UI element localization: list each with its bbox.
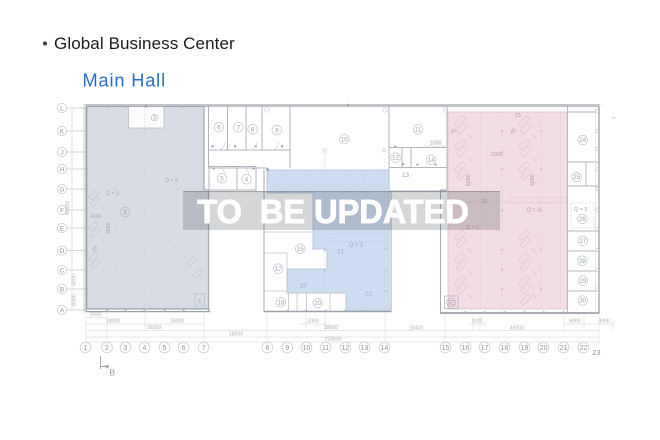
svg-text:1000: 1000 <box>471 319 483 325</box>
svg-text:6000: 6000 <box>569 319 581 325</box>
svg-text:45000: 45000 <box>510 326 525 332</box>
svg-text:16: 16 <box>462 345 470 352</box>
svg-text:13: 13 <box>361 345 369 352</box>
svg-text:18000: 18000 <box>106 319 121 325</box>
svg-text:15: 15 <box>297 246 304 253</box>
svg-text:TO BE UPDATED: TO BE UPDATED <box>197 194 469 231</box>
svg-text:10: 10 <box>341 136 348 143</box>
svg-text:18000: 18000 <box>229 332 244 338</box>
svg-text:G: G <box>59 186 64 193</box>
svg-text:18000: 18000 <box>170 319 185 325</box>
svg-text:Q = 3: Q = 3 <box>165 178 178 184</box>
svg-text:21: 21 <box>560 345 568 352</box>
svg-text:32: 32 <box>448 301 455 307</box>
svg-text:Q = 3: Q = 3 <box>349 243 363 249</box>
svg-text:6000: 6000 <box>90 312 102 318</box>
svg-text:6000: 6000 <box>72 294 78 306</box>
svg-text:17: 17 <box>481 345 489 352</box>
svg-text:Global Business Center: Global Business Center <box>54 34 235 53</box>
svg-text:26: 26 <box>579 216 586 223</box>
svg-text:10: 10 <box>303 345 311 352</box>
svg-text:7: 7 <box>237 124 241 131</box>
svg-text:20: 20 <box>540 345 548 352</box>
svg-text:1000: 1000 <box>430 141 442 147</box>
svg-text:20: 20 <box>314 300 321 307</box>
svg-text:8: 8 <box>251 126 255 133</box>
svg-text:11: 11 <box>322 345 329 352</box>
svg-text:9: 9 <box>285 345 289 352</box>
svg-text:2000: 2000 <box>307 319 319 325</box>
svg-text:B: B <box>60 286 65 293</box>
svg-text:40000: 40000 <box>65 201 71 216</box>
svg-text:23: 23 <box>515 113 521 119</box>
svg-text:19: 19 <box>299 283 307 290</box>
svg-text:6: 6 <box>217 124 221 131</box>
svg-text:6000: 6000 <box>466 174 472 186</box>
svg-text:14: 14 <box>381 345 389 352</box>
svg-text:1: 1 <box>84 345 88 352</box>
svg-text:25: 25 <box>573 174 580 181</box>
svg-text:12: 12 <box>392 155 399 162</box>
svg-text:22: 22 <box>580 345 588 352</box>
svg-text:6000: 6000 <box>530 174 536 186</box>
svg-text:15: 15 <box>442 345 450 352</box>
svg-text:F: F <box>60 207 64 214</box>
svg-text:Q = 3: Q = 3 <box>106 191 119 197</box>
svg-text:K: K <box>60 128 65 135</box>
svg-text:153600: 153600 <box>324 337 341 343</box>
svg-text:Q = 3: Q = 3 <box>574 207 587 213</box>
svg-text:4: 4 <box>143 345 147 352</box>
svg-text:13: 13 <box>402 172 409 179</box>
svg-text:7: 7 <box>202 345 206 352</box>
svg-text:22: 22 <box>365 291 373 298</box>
svg-text:L: L <box>60 105 64 112</box>
svg-text:3500: 3500 <box>106 222 112 234</box>
svg-text:Q = 3: Q = 3 <box>527 208 540 214</box>
svg-text:29: 29 <box>580 278 587 285</box>
svg-text:23: 23 <box>592 348 600 357</box>
svg-text:B: B <box>110 368 116 378</box>
svg-text:2: 2 <box>105 345 109 352</box>
svg-text:18: 18 <box>277 300 284 307</box>
svg-text:30: 30 <box>579 298 586 305</box>
svg-text:17: 17 <box>275 266 282 273</box>
svg-text:A: A <box>60 307 65 314</box>
svg-text:3: 3 <box>124 345 128 352</box>
svg-text:19: 19 <box>521 345 529 352</box>
svg-text:18400: 18400 <box>409 326 424 332</box>
svg-text:2000: 2000 <box>90 214 102 220</box>
svg-text:12: 12 <box>342 345 350 352</box>
svg-text:8: 8 <box>265 345 269 352</box>
svg-text:2: 2 <box>123 209 127 216</box>
svg-text:27: 27 <box>579 238 586 245</box>
svg-text:1000: 1000 <box>491 152 503 158</box>
svg-text:E: E <box>60 225 65 232</box>
svg-text:H: H <box>60 166 65 173</box>
svg-text:3: 3 <box>153 116 156 122</box>
svg-text:5: 5 <box>163 345 167 352</box>
svg-text:38000: 38000 <box>324 325 339 331</box>
svg-text:9: 9 <box>275 127 279 134</box>
svg-text:J: J <box>60 149 63 156</box>
svg-text:D: D <box>60 248 65 255</box>
svg-text:C: C <box>60 267 65 274</box>
svg-text:Main Hall: Main Hall <box>83 71 166 91</box>
svg-text:14: 14 <box>428 157 435 164</box>
svg-text:24: 24 <box>579 137 586 144</box>
svg-text:6: 6 <box>182 345 186 352</box>
svg-text:4: 4 <box>245 177 249 184</box>
svg-text:28: 28 <box>579 258 586 265</box>
svg-text:36000: 36000 <box>147 325 162 331</box>
svg-text:6000: 6000 <box>72 274 78 286</box>
svg-text:11: 11 <box>415 127 422 134</box>
svg-text:5: 5 <box>220 176 224 183</box>
svg-text:21: 21 <box>337 249 345 256</box>
svg-text:18: 18 <box>501 345 509 352</box>
svg-text:1: 1 <box>198 299 201 305</box>
svg-text:3000: 3000 <box>598 319 610 325</box>
